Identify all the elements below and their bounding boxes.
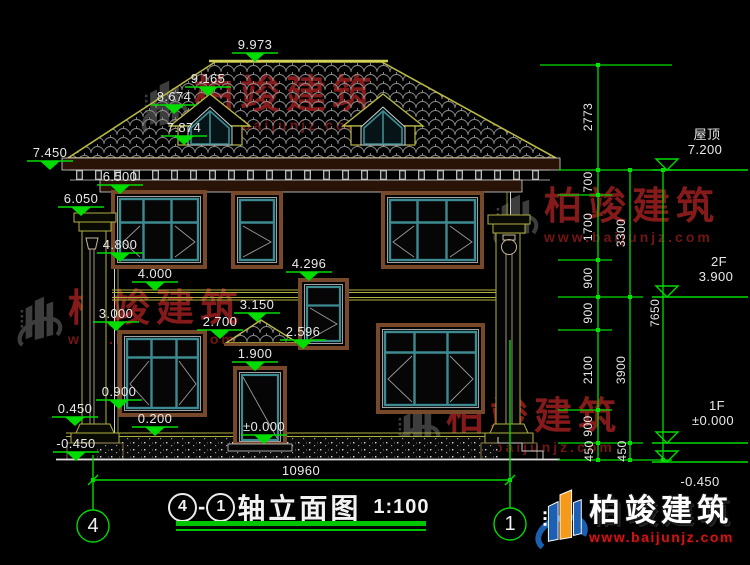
- axis-number-4: 4: [87, 515, 98, 538]
- window-1f-left: [120, 332, 205, 415]
- hip-roof: [68, 61, 556, 158]
- dimension-chains: [540, 65, 672, 460]
- dim-eave: 7.450: [33, 146, 68, 160]
- level-2f-value: 3.900: [699, 270, 734, 284]
- level-roof-label: 屋顶: [694, 128, 721, 142]
- chain-mid-3300: 3300: [614, 219, 628, 247]
- level-1f-label: 1F: [709, 399, 725, 413]
- dim-door-zero: ±0.000: [243, 420, 285, 434]
- cad-linework: [0, 0, 750, 565]
- chain-outer-7650: 7650: [648, 299, 662, 327]
- dim-dormer-peak: 9.165: [191, 72, 226, 86]
- elevation-drawing-canvas: 柏竣建筑 www.baijunjz.com 柏竣建筑 www.baijunjz.…: [0, 0, 750, 565]
- chain-mid-3900: 3900: [614, 356, 628, 384]
- dim-sill-1f: 0.900: [102, 385, 137, 399]
- window-2f-mid: [233, 193, 281, 267]
- chain-inner-2773: 2773: [581, 103, 595, 131]
- title-underline-thin: [176, 529, 426, 531]
- level-roof-value: 7.200: [688, 143, 723, 157]
- title-dash: -: [198, 494, 205, 520]
- dim-door-top: 1.900: [238, 347, 273, 361]
- dim-stair-win-bottom: 2.596: [286, 325, 321, 339]
- title-axis-bubble-start: 4: [168, 493, 197, 522]
- chain-inner-700: 700: [581, 171, 595, 192]
- window-2f-right: [383, 193, 482, 267]
- logo-brand: 柏竣建筑: [589, 495, 734, 528]
- dim-terrace: 0.200: [138, 412, 173, 426]
- dim-cornice: 6.500: [103, 170, 138, 184]
- chain-inner-900c: 900: [581, 415, 595, 436]
- chain-inner-2100: 2100: [581, 356, 595, 384]
- dim-sill-2f: 4.800: [103, 238, 138, 252]
- chain-inner-900a: 900: [581, 267, 595, 288]
- chain-mid-450: 450: [615, 440, 629, 461]
- dim-ground: -0.450: [56, 437, 95, 451]
- dim-canopy-top: 3.150: [240, 298, 275, 312]
- site-logo: 柏竣建筑 www.baijunjz.com: [531, 484, 734, 556]
- level-1f-value: ±0.000: [692, 414, 734, 428]
- level-2f-label: 2F: [711, 255, 727, 269]
- dim-win-1f-top: 3.000: [99, 307, 134, 321]
- chain-inner-1700: 1700: [581, 213, 595, 241]
- chain-inner-450: 450: [582, 440, 596, 461]
- logo-building-icon: [531, 484, 589, 556]
- dim-dormer-sill: 7.874: [167, 121, 202, 135]
- axis-number-1: 1: [504, 513, 515, 536]
- window-1f-right: [378, 325, 483, 412]
- title-scale: 1:100: [373, 496, 429, 519]
- dim-pillar-base: 0.450: [58, 402, 93, 416]
- dim-pillar-top: 6.050: [64, 192, 99, 206]
- title-underline-thick: [176, 521, 426, 526]
- dim-canopy-eave: 2.700: [203, 315, 238, 329]
- dim-slab-2f: 4.000: [138, 267, 173, 281]
- dim-stair-win-top: 4.296: [292, 257, 327, 271]
- logo-url: www.baijunjz.com: [589, 529, 734, 545]
- dim-dormer-eave: 8.674: [157, 90, 192, 104]
- chain-inner-900b: 900: [581, 302, 595, 323]
- title-axis-bubble-end: 1: [206, 493, 235, 522]
- dim-ridge: 9.973: [238, 38, 273, 52]
- dim-total-width: 10960: [282, 464, 320, 478]
- pillar-right: [481, 215, 537, 459]
